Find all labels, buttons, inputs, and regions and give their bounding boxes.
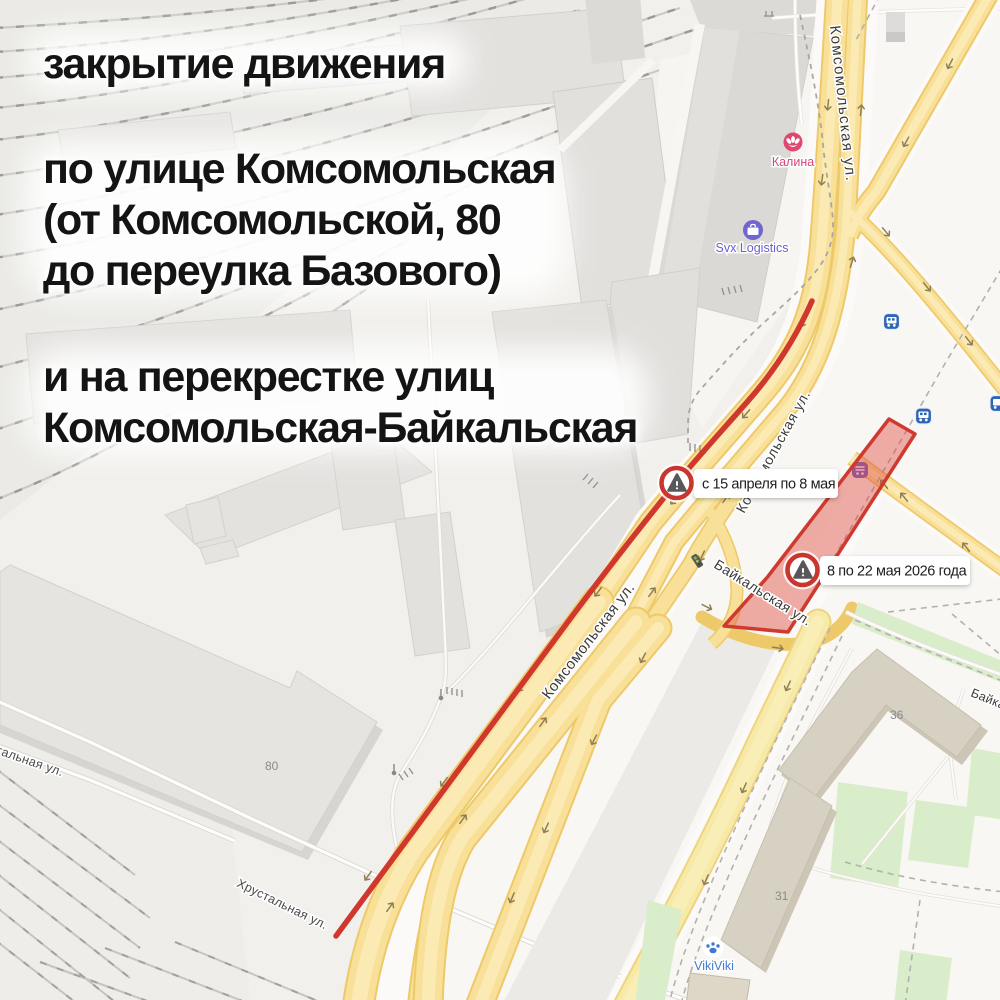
svg-text:36: 36 [890,708,904,722]
svg-text:80: 80 [265,759,279,773]
svg-text:с 15 апреля по 8 мая: с 15 апреля по 8 мая [702,477,835,493]
svg-text:Svx Logistics: Svx Logistics [716,241,789,255]
svg-text:8 по 22 мая 2026 года: 8 по 22 мая 2026 года [827,564,968,580]
svg-text:Калина: Калина [772,155,814,169]
svg-text:VikiViki: VikiViki [694,959,734,973]
svg-text:31: 31 [775,889,789,903]
